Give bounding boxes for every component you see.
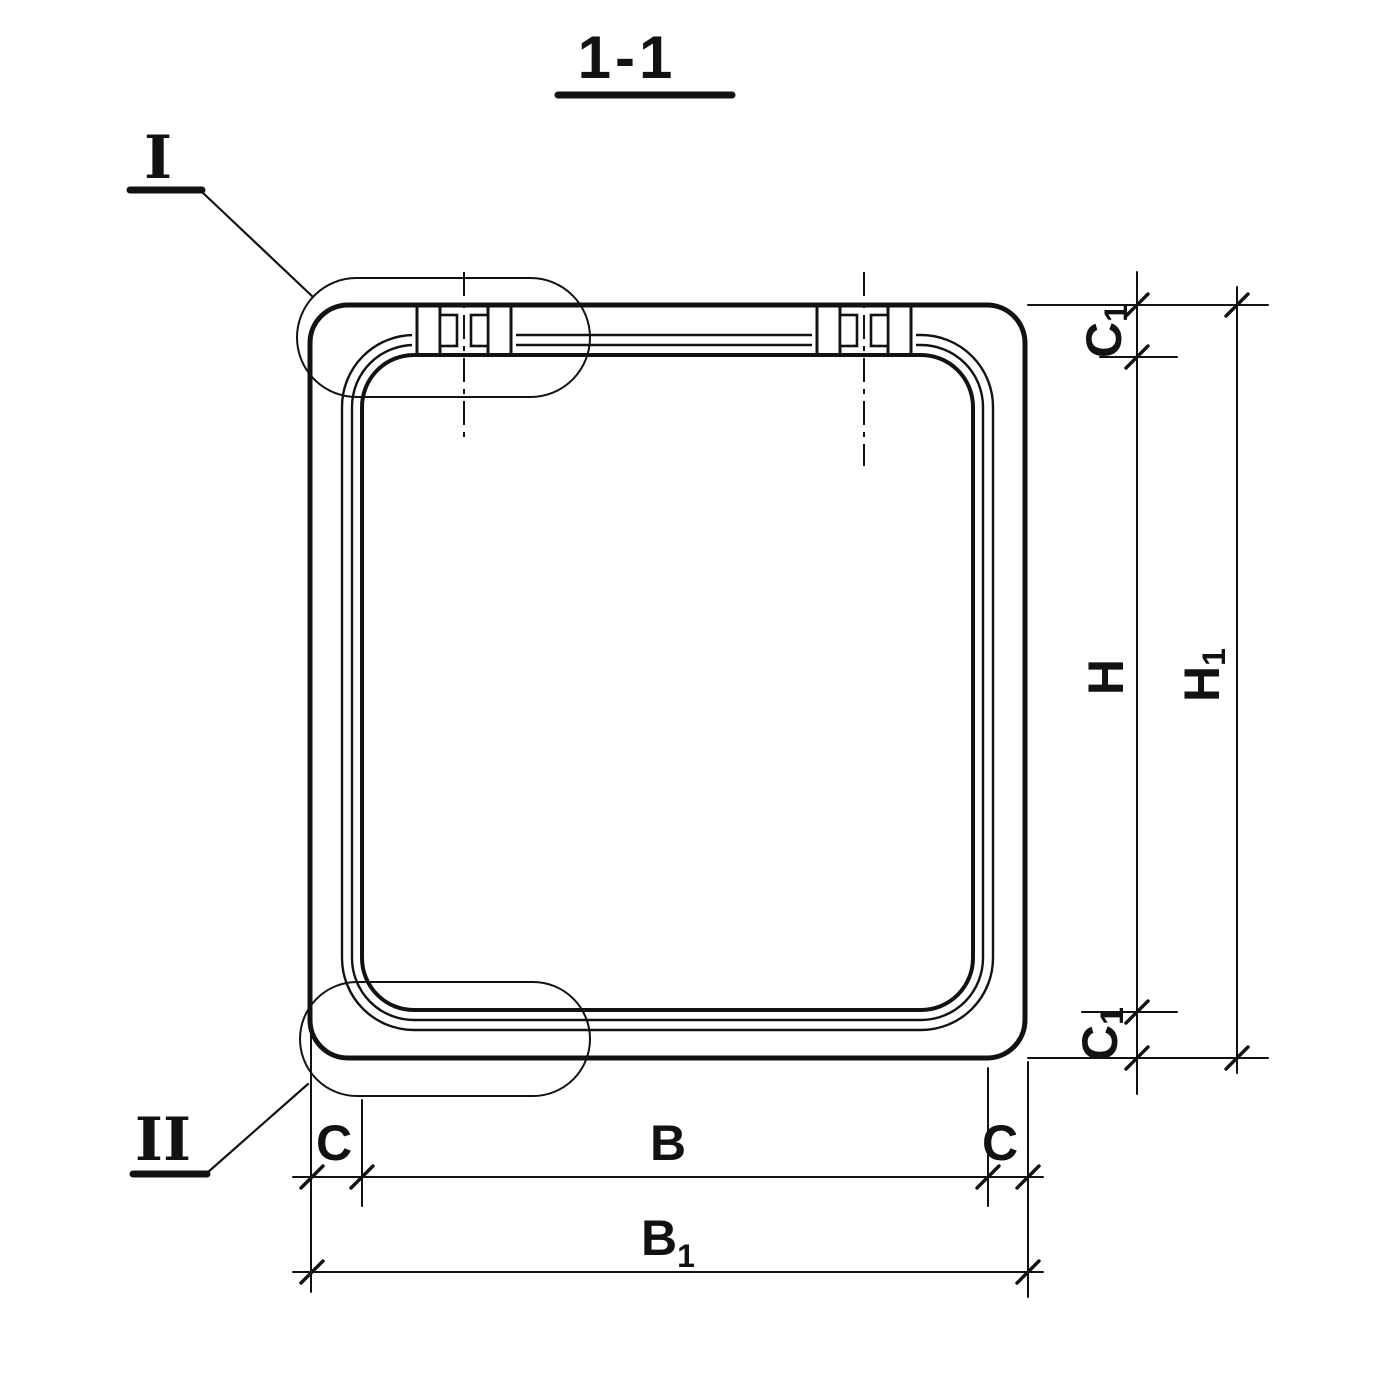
joint-right-key: [871, 315, 888, 346]
detail-boundary-ii: [300, 982, 590, 1096]
dim-label-b1: B1: [641, 1210, 695, 1274]
dim-label-h: H: [1078, 659, 1134, 695]
dim-label-c-right: C: [982, 1115, 1018, 1171]
callout-ii-label: II: [135, 1105, 191, 1175]
callout-i-leader: [202, 192, 313, 297]
inner-contour-offset-2: [342, 335, 993, 1030]
vertical-dimensions: C1 H H1 C1: [1028, 272, 1268, 1094]
dim-label-c1-top: C1: [1076, 304, 1134, 358]
horizontal-dimensions: C B C B1: [293, 1032, 1043, 1297]
joint-left-key: [440, 315, 457, 346]
dim-label-b: B: [650, 1115, 686, 1171]
dim-label-c1-bottom: C1: [1072, 1007, 1130, 1061]
callout-ii-leader: [207, 1084, 308, 1173]
dim-label-c-left: C: [316, 1115, 352, 1171]
frame-section: [310, 272, 1025, 1058]
outer-contour: [310, 305, 1025, 1058]
callout-i-label: I: [144, 123, 172, 193]
callout-i: I: [130, 123, 313, 297]
joint-left-key: [471, 315, 488, 346]
inner-contour-offset-1: [352, 345, 983, 1020]
dim-label-h1: H1: [1174, 648, 1232, 702]
drawing-sheet: 1-1: [0, 0, 1374, 1379]
section-title: 1-1: [578, 24, 677, 91]
section-drawing: 1-1: [0, 0, 1374, 1379]
callout-ii: II: [133, 1084, 308, 1175]
joint-right-key: [840, 315, 857, 346]
inner-opening-contour: [362, 355, 973, 1010]
